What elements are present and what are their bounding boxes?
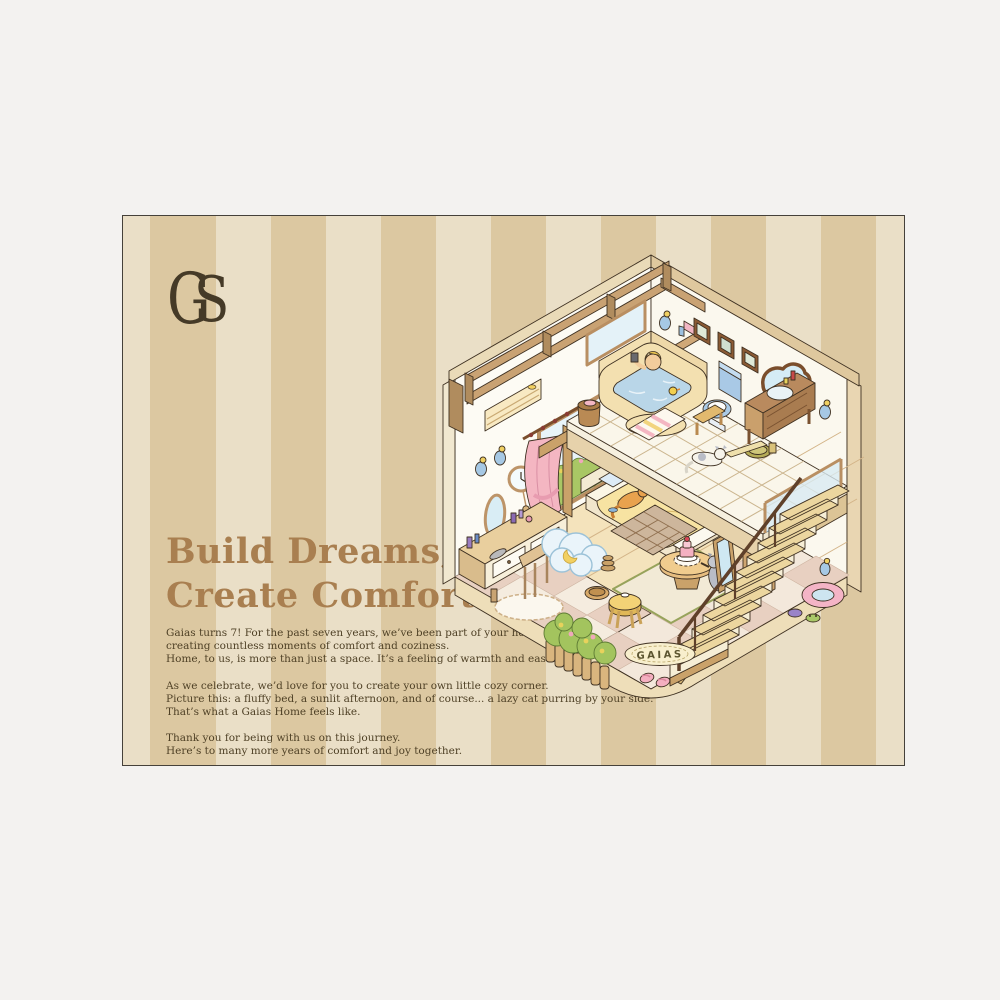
laundry-basket (578, 400, 600, 427)
rubber-duck (669, 387, 677, 395)
body-line: Here’s to many more years of comfort and… (166, 745, 653, 758)
gaias-rug: GAIAS (625, 643, 695, 666)
page: { "poster": { "stripe_light": "#eadfc7",… (0, 0, 1000, 1000)
soap-bottle (791, 371, 795, 380)
body-paragraph-3: Thank you for being with us on this jour… (166, 732, 653, 758)
spring-toy (601, 556, 615, 572)
logo-letter-s: S (194, 268, 229, 331)
fluffy-rug (495, 594, 563, 620)
poster-card: G S Build Dreams, Create Comfort Gaias t… (122, 215, 905, 766)
gaias-monogram-logo: G S (167, 264, 247, 334)
wall-sconce-icon (820, 563, 830, 576)
wall-sconce-icon (660, 316, 671, 330)
pet-bed (802, 583, 844, 608)
body-line: Thank you for being with us on this jour… (166, 732, 653, 745)
cosmetics (511, 513, 516, 523)
cup (621, 593, 629, 597)
rug-text: GAIAS (636, 649, 683, 662)
birthday-cake (680, 547, 694, 557)
jar (769, 443, 776, 453)
isometric-house-illustration: GAIAS (426, 249, 886, 734)
wall-sconce-icon (820, 405, 831, 419)
round-tray (585, 587, 609, 600)
